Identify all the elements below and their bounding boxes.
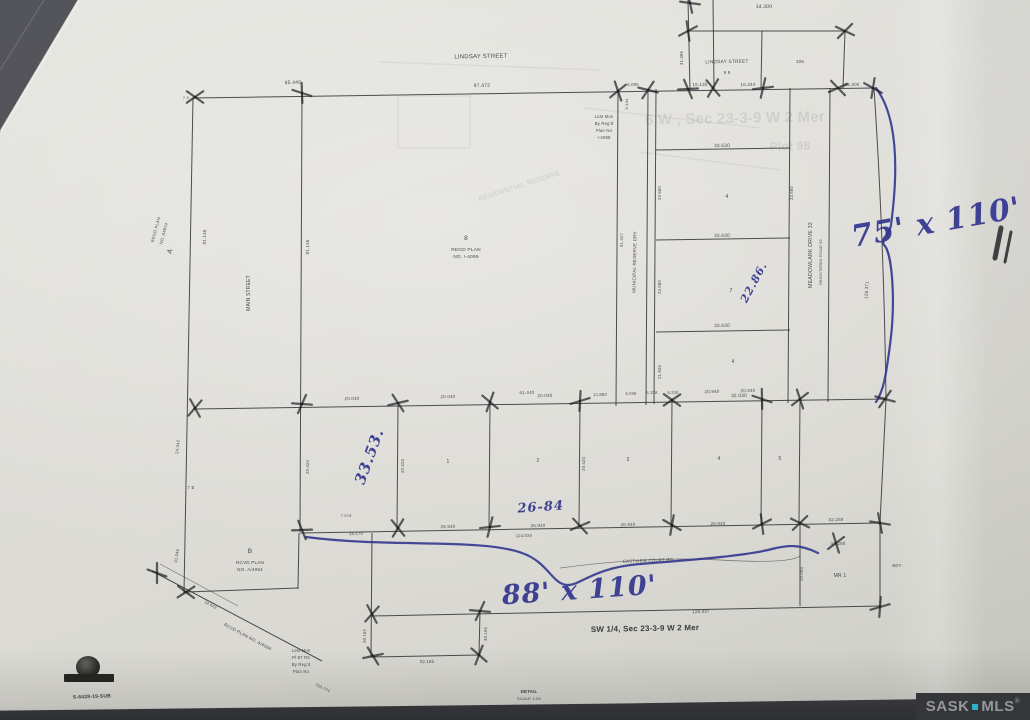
quarter-section-title: SW 1/4, Sec 23-3-9 W 2 Mer — [591, 623, 699, 634]
monument-mark — [388, 403, 398, 405]
street-label-lindsay-west: LINDSAY STREET — [454, 54, 507, 61]
monument-mark — [763, 87, 773, 88]
monument-mark — [880, 523, 890, 525]
monument-mark — [885, 399, 895, 402]
lot-number: 5 — [779, 456, 782, 462]
annotation-88x110: 88' x 110' — [500, 570, 658, 612]
monument-mark — [638, 88, 648, 90]
file-number-label: S-6428-19-SUB — [73, 693, 112, 700]
monument-mark — [672, 515, 674, 525]
monument-note: By Reg'd — [292, 662, 311, 667]
plan-note: RCVD PLAN — [236, 560, 264, 565]
monument-mark — [302, 93, 312, 96]
monument-mark — [618, 85, 626, 91]
annotation-2684: 26-84 — [516, 498, 565, 516]
monument-mark — [762, 519, 771, 524]
dimension-label: 20.040 — [440, 394, 455, 399]
detail-label: DETAIL — [521, 689, 538, 694]
dimension-label: 32.030 — [731, 393, 747, 399]
dimension-label: 128.037 — [692, 609, 710, 614]
monument-note: Plan No — [596, 128, 613, 133]
monument-note: Lost Mon — [595, 114, 614, 119]
monument-mark — [190, 399, 195, 408]
monument-mark — [713, 88, 719, 96]
monument-note: Plan No — [293, 669, 310, 674]
monument-mark — [690, 3, 692, 13]
monument-mark — [490, 402, 498, 408]
lot-number: 9 9 — [724, 70, 731, 75]
dimension-label: 126.371 — [864, 281, 870, 299]
monument-mark — [870, 607, 880, 610]
dimension-label: 30.165 — [362, 628, 367, 643]
under-page-edge — [0, 0, 44, 70]
monument-mark — [845, 24, 852, 31]
monument-mark — [762, 399, 771, 402]
monument-mark — [398, 403, 403, 411]
monument-mark — [753, 396, 762, 399]
monument-mark — [148, 570, 157, 573]
monument-mark — [480, 611, 490, 612]
surveyor-logo-banner — [64, 674, 114, 682]
dimension-label: 20.420 — [400, 458, 405, 473]
monument-mark — [762, 524, 763, 534]
monument-mark — [373, 654, 383, 656]
annotation-2286: 22.86. — [737, 260, 770, 306]
monument-mark — [302, 530, 306, 539]
monument-mark — [292, 403, 302, 404]
monument-mark — [363, 656, 373, 658]
dimension-label: 20.068 — [799, 566, 804, 581]
dimension-label: 7.9 — [183, 591, 190, 596]
sask-mls-watermark: SASK MLS ® — [916, 693, 1030, 720]
dimension-label: 20.940 — [740, 388, 755, 393]
monument-mark — [302, 395, 306, 404]
monument-mark — [831, 81, 838, 88]
street-label-meadowlark: MEADOWLARK DRIVE 32 — [808, 222, 814, 288]
reserve-label: MUNICIPAL RESERVE DRY — [631, 231, 637, 293]
monument-mark — [475, 655, 479, 664]
monument-mark — [763, 78, 765, 88]
monument-mark — [372, 607, 379, 614]
dimension-label: 7 B — [188, 485, 195, 490]
monument-mark — [480, 602, 484, 611]
dimension-label: 7.975 — [340, 513, 352, 518]
dimension-label: 26.940 — [620, 522, 635, 527]
monument-mark — [393, 528, 398, 537]
monument-mark — [580, 522, 589, 526]
bleedthrough-text: Plot 98 — [769, 139, 810, 154]
survey-plan-drawing: LINDSAY STREET97.47285.4407.934.300LINDS… — [0, 0, 1030, 720]
plan-note: NO. A4874 — [158, 222, 169, 245]
monument-mark — [580, 526, 587, 533]
monument-mark — [298, 404, 302, 413]
monument-mark — [479, 655, 487, 662]
dimension-label: 31.046 — [173, 548, 180, 563]
monument-mark — [580, 398, 590, 401]
dimension-label: 34.300 — [844, 82, 859, 87]
dimension-label: 23.680 — [657, 186, 662, 200]
monument-mark — [880, 597, 881, 607]
monument-mark — [678, 89, 688, 90]
street-label-main: MAIN STREET — [246, 275, 252, 311]
monument-mark — [188, 408, 195, 416]
dimension-label: 9.144 — [624, 98, 629, 110]
monument-mark — [480, 527, 490, 528]
dimension-label: 33.630 — [714, 323, 730, 329]
dimension-label: 114.035 — [516, 533, 533, 538]
watermark-text-right: MLS — [981, 698, 1014, 715]
monument-note: I-4099 — [597, 135, 611, 140]
monument-mark — [679, 31, 688, 36]
monument-mark — [687, 21, 688, 31]
monument-mark — [708, 88, 713, 97]
dimension-label: 26.940 — [530, 523, 545, 528]
monument-mark — [195, 91, 203, 97]
plan-note: REGD PLAN — [451, 247, 481, 253]
monument-mark — [836, 27, 845, 31]
monument-mark — [302, 404, 312, 405]
dimension-label: 31.396 — [679, 51, 684, 65]
lot-number: 4 — [726, 194, 729, 200]
dimension-label: 61.440 — [519, 390, 534, 395]
monument-mark — [471, 648, 479, 655]
teal-dot-icon — [972, 704, 978, 710]
paper-corner-edge — [1, 0, 79, 131]
survey-plan-photo: LINDSAY STREET97.47285.4407.934.300LINDS… — [0, 0, 1030, 720]
dimension-label: 26.940 — [710, 521, 725, 526]
monument-mark — [615, 82, 618, 91]
monument-mark — [579, 401, 580, 411]
annotation-3353: 33.53. — [351, 426, 388, 487]
monument-mark — [800, 523, 809, 527]
monument-mark — [195, 400, 202, 408]
scale-label: SCALE 1:50 — [517, 696, 542, 701]
monument-mark — [761, 514, 762, 524]
dimension-label: 34.300 — [756, 4, 773, 10]
monument-mark — [838, 31, 845, 38]
dimension-label: 26.940 — [440, 524, 455, 529]
monument-mark — [707, 80, 713, 88]
monument-mark — [398, 519, 403, 528]
reserve-lot-label: MR 1 — [834, 573, 847, 579]
dimension-label: 32.288 — [828, 517, 843, 522]
dimension-label: 20.040 — [537, 393, 552, 398]
registered-mark: ® — [1015, 698, 1021, 705]
plan-note: NO. I-4099 — [453, 254, 479, 260]
dimension-label: 15.135 — [692, 82, 707, 87]
monument-mark — [398, 528, 404, 536]
lot-number: 105 — [796, 59, 804, 64]
dimension-label: 16.344 — [740, 82, 755, 87]
monument-mark — [688, 31, 689, 41]
parcel-label-b: B — [248, 548, 253, 555]
monument-mark — [680, 2, 690, 3]
monument-mark — [368, 648, 373, 656]
monument-note: By Reg'd — [595, 121, 614, 126]
parcel-label-a: A — [166, 248, 174, 255]
watermark-text-left: SASK — [926, 698, 970, 715]
dimension-label: 730.774 — [314, 682, 331, 694]
lot-number: 3 — [627, 457, 630, 463]
dimension-label: 7.9 — [183, 95, 190, 100]
monument-mark — [838, 88, 845, 95]
monument-mark — [800, 393, 808, 399]
monument-note: Lost Mon — [292, 648, 311, 653]
monument-mark — [482, 396, 490, 402]
dimension-label: 30.165 — [483, 626, 488, 641]
lot-number: 4 — [718, 456, 721, 462]
monument-mark — [797, 389, 800, 399]
monument-mark — [470, 610, 480, 611]
lot-number: 7 — [729, 288, 732, 294]
dimension-label: 97.472 — [474, 83, 491, 89]
monument-mark — [672, 525, 681, 530]
dimension-label: 23.680 — [789, 186, 794, 200]
monument-mark — [800, 516, 807, 523]
dimension-label: 33.630 — [714, 233, 730, 239]
monument-note: Pl 97 R2 — [292, 655, 310, 660]
monument-mark — [372, 614, 377, 623]
dimension-label: 81.145 — [202, 229, 207, 244]
dimension-label: 20.420 — [305, 459, 310, 474]
plan-note: NO. A/4084 — [237, 567, 263, 572]
monument-mark — [879, 607, 880, 617]
monument-mark — [873, 78, 875, 88]
dimension-label: 5.338 — [646, 390, 658, 395]
dimension-label: 14.170 — [349, 531, 364, 536]
dimension-label: 32.288 — [830, 541, 845, 546]
dimension-label: 32.185 — [420, 659, 435, 664]
dimension-label: 20.040 — [344, 396, 359, 401]
dimension-label: 85.440 — [285, 80, 302, 87]
monument-mark — [672, 400, 680, 406]
dimension-label: 21.945 — [657, 365, 662, 379]
dimension-label: 20.420 — [581, 456, 586, 471]
lot-number: 4 — [732, 359, 735, 365]
monument-mark — [398, 401, 408, 403]
monument-mark — [753, 88, 763, 89]
monument-mark — [618, 91, 621, 100]
monument-mark — [490, 393, 493, 402]
monument-mark — [870, 521, 880, 523]
monument-mark — [688, 26, 697, 31]
surveyor-stamp — [62, 656, 116, 690]
monument-mark — [490, 517, 492, 527]
monument-mark — [688, 88, 698, 89]
dimension-label: 24.342 — [174, 439, 180, 454]
boundary-note: BDY — [892, 563, 901, 568]
dimension-label: 33.630 — [714, 143, 730, 149]
dimension-label: 91.427 — [619, 232, 624, 247]
monument-mark — [845, 31, 854, 35]
monument-mark — [684, 80, 688, 89]
dimension-label: 6.096 — [625, 391, 637, 396]
monument-mark — [648, 82, 654, 90]
dimension-label: 81.145 — [305, 239, 310, 254]
monument-mark — [879, 399, 885, 407]
monument-mark — [672, 394, 680, 400]
monument-mark — [878, 513, 880, 523]
pen-mark — [1005, 232, 1011, 262]
lot-number: 2 — [537, 458, 540, 464]
dimension-label: 6.096 — [627, 82, 639, 87]
monument-mark — [871, 88, 873, 98]
pen-mark — [995, 228, 1001, 258]
monument-mark — [488, 527, 490, 537]
pen-annotation-strokes — [306, 88, 1011, 585]
monument-mark — [864, 83, 873, 88]
road-note: REGISTERED ROAD 99 — [819, 239, 823, 285]
monument-mark — [880, 604, 890, 607]
monument-mark — [580, 391, 581, 401]
dimension-label: 34.842 — [204, 599, 219, 610]
dimension-label: 20.940 — [704, 389, 719, 394]
lot-number: 1 — [447, 459, 450, 465]
monument-mark — [292, 90, 302, 93]
road-plan-note: RCVD PLAN NO. A/4084 — [223, 622, 273, 651]
bleedthrough-text: 6 W , Sec 23-3-9 W 2 Mer — [645, 108, 825, 128]
dimension-label: 13.880 — [593, 392, 608, 397]
monument-mark — [490, 526, 500, 527]
dimension-label: 23.680 — [657, 280, 662, 294]
monument-mark — [664, 400, 672, 406]
monument-mark — [690, 3, 700, 4]
bleedthrough-text: RESIDENTIAL RESERVE — [478, 170, 562, 203]
street-label-lindsay-east: LINDSAY STREET — [705, 59, 748, 66]
block-number: 8 — [464, 235, 468, 242]
dimension-label: 8.230 — [667, 390, 679, 395]
monument-mark — [393, 395, 398, 403]
